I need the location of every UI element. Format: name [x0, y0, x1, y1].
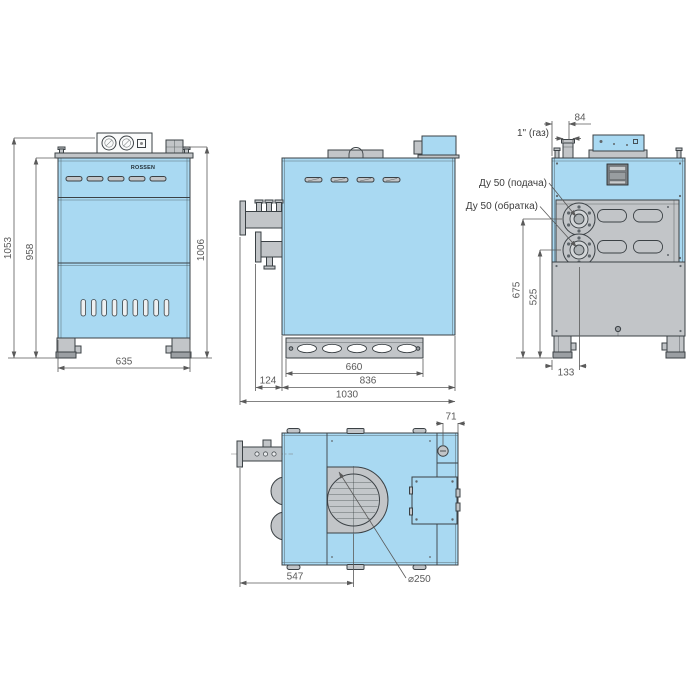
base-frame	[286, 338, 423, 358]
control-box-top-view	[410, 477, 461, 524]
top-louvers	[66, 177, 166, 182]
return-flange	[563, 234, 595, 266]
dim-label: 84	[574, 113, 586, 124]
dim-label: 1053	[3, 236, 14, 259]
dim-label: 1030	[336, 390, 359, 401]
boiler-side-body	[282, 158, 455, 335]
dim-label: 71	[445, 412, 457, 423]
dim-label: 958	[25, 243, 36, 260]
supply-label: Ду 50 (подача)	[479, 178, 547, 189]
lower-panel	[552, 262, 685, 337]
gas-pipe	[562, 140, 575, 159]
water-pipe-upper	[240, 200, 283, 235]
dim-label: 836	[360, 376, 377, 387]
supply-flange	[563, 203, 595, 235]
dim-label: 1006	[196, 238, 207, 261]
side-view: 660 124 836 1030	[240, 136, 459, 405]
handle-icon	[347, 565, 364, 570]
dim-front-body-height: 958	[25, 158, 56, 358]
dim-label: 547	[287, 572, 304, 583]
dim-label: 635	[116, 357, 133, 368]
dim-label: 133	[558, 368, 575, 379]
gas-size-label: 1" (газ)	[517, 128, 549, 139]
dim-label: 124	[260, 376, 277, 387]
control-panel	[97, 133, 152, 153]
brand-logo: ROSSEN	[131, 165, 155, 171]
dim-side-base-width: 660	[286, 359, 423, 377]
drawing-canvas: ROSSEN	[0, 0, 700, 700]
boiler-technical-drawing: ROSSEN	[0, 0, 700, 700]
back-view: 84 1" (газ) Ду 50 (подача) Ду 50 (обратк…	[466, 113, 685, 379]
dim-label: 525	[529, 288, 540, 305]
water-pipe-lower	[256, 232, 283, 269]
flue-stub-front	[166, 140, 183, 154]
dim-label: ⌀250	[408, 574, 431, 585]
flue-outlet-side	[414, 136, 459, 158]
dim-front-width: 635	[58, 340, 190, 372]
burner-control-box	[593, 135, 644, 151]
gas-connection-top	[438, 446, 448, 456]
return-label: Ду 50 (обратка)	[466, 200, 538, 212]
legs-back	[553, 336, 685, 358]
bottom-louvers	[81, 300, 169, 317]
rating-plate	[607, 164, 628, 185]
handle-icon	[347, 429, 364, 434]
legs-front	[56, 338, 191, 358]
dim-label: 660	[346, 362, 363, 373]
dim-label: 675	[512, 281, 523, 298]
front-view: ROSSEN	[3, 133, 212, 372]
plan-view: 71 547 ⌀250	[231, 412, 465, 588]
